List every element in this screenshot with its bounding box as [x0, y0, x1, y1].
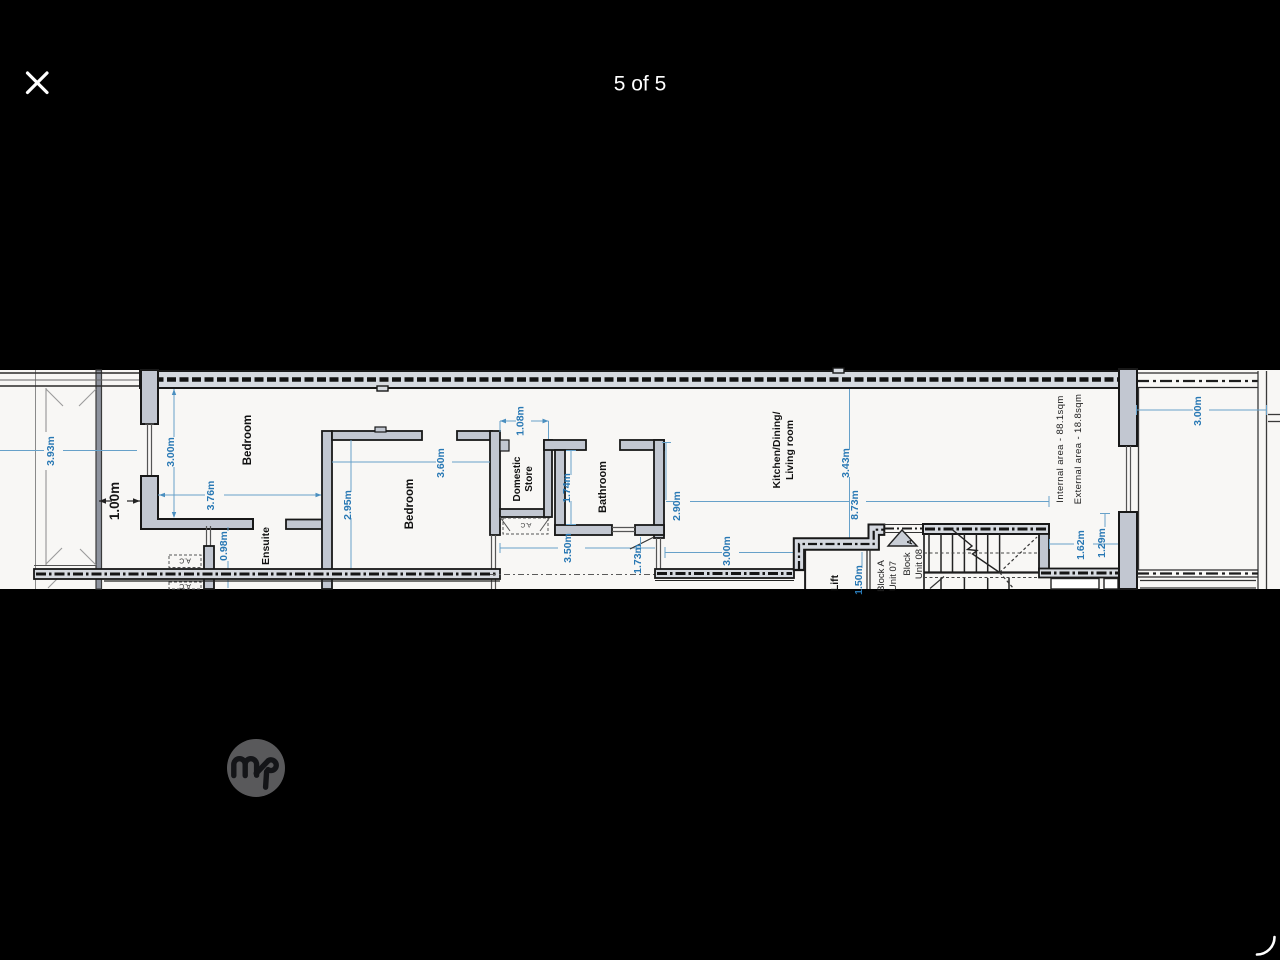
svg-text:Lift: Lift — [829, 574, 841, 591]
svg-text:1.62m: 1.62m — [1075, 530, 1087, 560]
svg-text:Unit 07: Unit 07 — [888, 561, 899, 591]
svg-text:Bedroom: Bedroom — [404, 479, 416, 529]
svg-text:3.43m: 3.43m — [840, 448, 852, 478]
svg-text:Domestic: Domestic — [512, 456, 523, 501]
svg-text:External area - 18.8sqm: External area - 18.8sqm — [1073, 394, 1084, 505]
svg-text:8.73m: 8.73m — [849, 490, 861, 520]
svg-text:1.08m: 1.08m — [515, 406, 527, 436]
svg-text:A.C: A.C — [520, 521, 531, 528]
svg-text:Internal area - 88.1sqm: Internal area - 88.1sqm — [1055, 395, 1066, 502]
svg-text:3.00m: 3.00m — [165, 437, 177, 467]
svg-text:A.C: A.C — [179, 582, 191, 589]
svg-text:Kitchen/Dining/: Kitchen/Dining/ — [771, 411, 783, 488]
svg-text:Living room: Living room — [784, 420, 796, 480]
svg-text:Bathroom: Bathroom — [597, 461, 609, 513]
svg-text:Block: Block — [902, 552, 913, 575]
svg-text:1.50m: 1.50m — [853, 565, 865, 595]
svg-text:3.93m: 3.93m — [45, 436, 57, 466]
svg-text:2.90m: 2.90m — [671, 491, 683, 521]
svg-text:A: A — [907, 539, 914, 544]
svg-text:1.29m: 1.29m — [1096, 528, 1108, 558]
svg-text:1.74m: 1.74m — [561, 473, 573, 503]
svg-text:3.50m: 3.50m — [562, 533, 574, 563]
svg-text:2.95m: 2.95m — [342, 490, 354, 520]
svg-text:3.76m: 3.76m — [205, 481, 217, 511]
svg-text:3.00m: 3.00m — [1192, 396, 1204, 426]
svg-text:1.00m: 1.00m — [107, 482, 122, 520]
svg-text:Bedroom: Bedroom — [242, 415, 254, 465]
svg-text:5 of 5: 5 of 5 — [614, 73, 667, 96]
svg-text:Store: Store — [524, 466, 535, 492]
svg-text:3.60m: 3.60m — [435, 448, 447, 478]
svg-text:A.C: A.C — [179, 557, 191, 564]
svg-text:Ensuite: Ensuite — [260, 527, 272, 565]
svg-text:0.98m: 0.98m — [218, 531, 230, 561]
svg-text:1.73m: 1.73m — [632, 544, 644, 574]
svg-text:3.00m: 3.00m — [721, 536, 733, 566]
svg-text:Block A: Block A — [876, 559, 887, 591]
